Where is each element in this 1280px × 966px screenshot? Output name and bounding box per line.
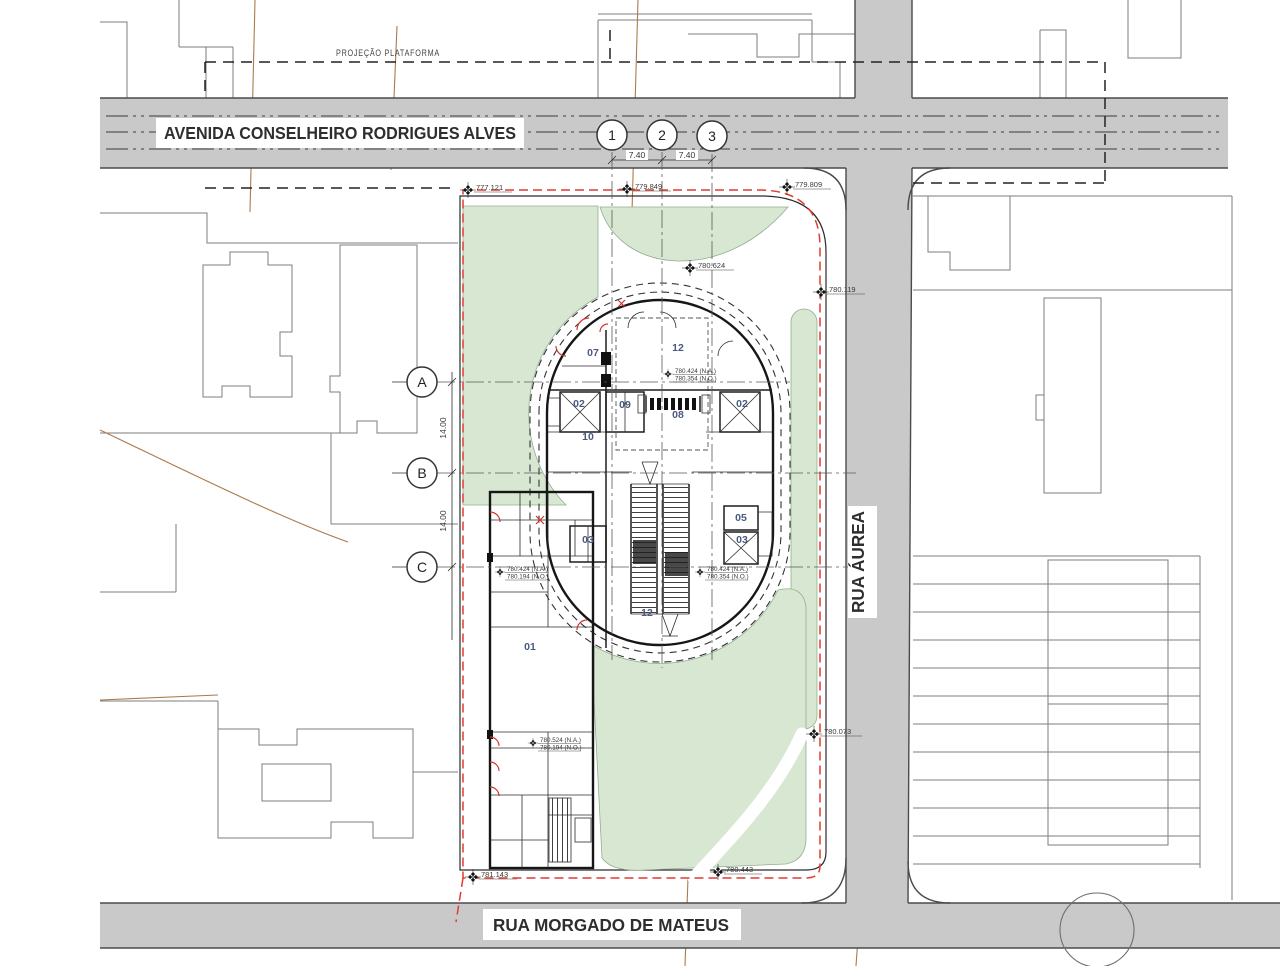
column-spacing-label: 7.40 — [629, 150, 646, 160]
rua-aurea-band-top — [855, 0, 912, 98]
annex-stair — [549, 798, 571, 862]
column-spacing-label: 7.40 — [679, 150, 696, 160]
survey-marker: 781.143 — [465, 869, 517, 885]
grid-bubble-column: 3 — [708, 128, 716, 144]
room-label: 08 — [672, 409, 684, 421]
svg-text:780.424 (N.A.): 780.424 (N.A.) — [675, 368, 716, 375]
room-label: 07 — [587, 347, 599, 359]
green-bottom — [594, 589, 806, 871]
survey-marker: 780.624 — [682, 260, 734, 276]
room-label: 09 — [619, 399, 631, 411]
svg-text:781.143: 781.143 — [481, 870, 508, 879]
row-spacing-label: 14.00 — [438, 510, 448, 532]
room-label: 12 — [641, 607, 653, 619]
room-label: 05 — [735, 512, 747, 524]
tower-building — [547, 300, 773, 648]
svg-text:780.354 (N.O.): 780.354 (N.O.) — [675, 376, 717, 383]
grid-bubble-column: 1 — [608, 127, 616, 143]
grid-bubble-row: C — [417, 559, 427, 575]
platform-projection-label: PROJEÇÃO PLATAFORMA — [336, 48, 440, 59]
survey-marker: 779.809 — [779, 179, 831, 195]
row-spacing-label: 14.00 — [438, 417, 448, 439]
grid-bubble-row: A — [417, 374, 427, 390]
room-label: 12 — [672, 342, 684, 354]
level-note: 780.424 (N.A.) 780.354 (N.O.) — [663, 368, 717, 383]
site-plan-drawing: 7.40 7.40 14.00 14.00 1 2 3 A B C 07 12 … — [0, 0, 1280, 966]
room-label: 02 — [573, 398, 585, 410]
level-note: 780.424 (N.A.) 780.354 (N.O.) — [695, 566, 749, 581]
svg-text:780.524 (N.A.): 780.524 (N.A.) — [540, 737, 581, 744]
svg-text:780.194 (N.O.): 780.194 (N.O.) — [540, 745, 582, 752]
room-label: 01 — [524, 641, 536, 653]
avenue-label: AVENIDA CONSELHEIRO RODRIGUES ALVES — [164, 123, 516, 143]
green-top-center — [600, 207, 788, 261]
level-note: 780.424 (N.A.) 780.194 (N.O.) — [495, 566, 549, 581]
svg-text:780.443: 780.443 — [726, 865, 753, 874]
room-label: 02 — [736, 398, 748, 410]
tower-canopy-rings — [530, 283, 790, 662]
svg-text:779.809: 779.809 — [795, 180, 822, 189]
svg-text:777.121: 777.121 — [476, 183, 503, 192]
rua-aurea-label: RUA ÁUREA — [847, 511, 868, 613]
grid-bubble-column: 2 — [658, 127, 666, 143]
annex-building — [487, 492, 593, 868]
room-label: 03 — [582, 534, 594, 546]
level-note: 780.524 (N.A.) 780.194 (N.O.) — [528, 737, 582, 752]
rua-morgado-label: RUA MORGADO DE MATEUS — [493, 915, 729, 935]
structural-grid: 7.40 7.40 14.00 14.00 1 2 3 A B C — [392, 120, 856, 668]
svg-text:780.624: 780.624 — [698, 261, 725, 270]
survey-marker: 779.849 — [619, 181, 671, 197]
svg-text:779.849: 779.849 — [635, 182, 662, 191]
svg-text:780.073: 780.073 — [824, 727, 851, 736]
svg-text:780.354 (N.O.): 780.354 (N.O.) — [707, 574, 749, 581]
svg-text:780.424 (N.A.): 780.424 (N.A.) — [707, 566, 748, 573]
room-label: 10 — [582, 431, 594, 443]
room-label: 03 — [736, 534, 748, 546]
svg-text:780.119: 780.119 — [829, 285, 856, 294]
svg-text:780.194 (N.O.): 780.194 (N.O.) — [507, 574, 549, 581]
grid-bubble-row: B — [417, 465, 426, 481]
svg-text:780.424 (N.A.): 780.424 (N.A.) — [507, 566, 548, 573]
green-upper-left — [463, 206, 598, 505]
site-plan-sheet: 7.40 7.40 14.00 14.00 1 2 3 A B C 07 12 … — [0, 0, 1280, 966]
